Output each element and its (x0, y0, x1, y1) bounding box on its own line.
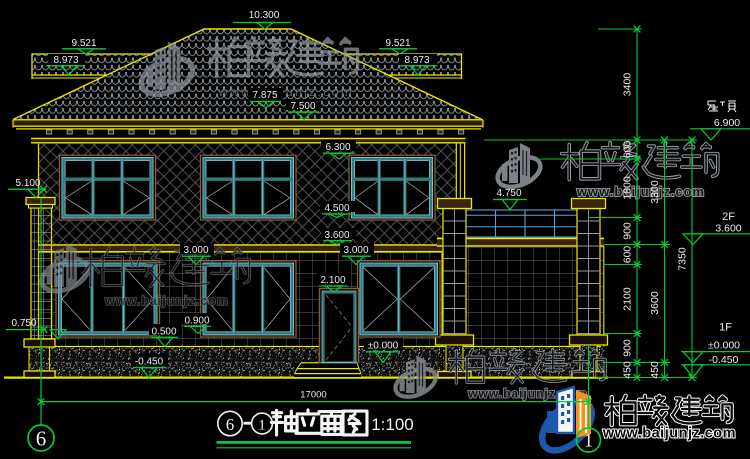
svg-text:450: 450 (649, 361, 661, 379)
svg-text:3600: 3600 (649, 291, 661, 315)
svg-text:0.500: 0.500 (151, 327, 176, 338)
svg-text:450: 450 (622, 361, 634, 379)
svg-text:3300: 3300 (649, 180, 661, 204)
svg-text:www.baijunjz.com: www.baijunjz.com (217, 84, 353, 99)
svg-text:1:100: 1:100 (371, 415, 414, 434)
svg-text:6.900: 6.900 (714, 117, 740, 129)
svg-text:8.973: 8.973 (53, 55, 78, 66)
svg-text:www.baijunjz.com: www.baijunjz.com (602, 426, 736, 442)
svg-text:1: 1 (584, 431, 594, 452)
svg-text:0.750: 0.750 (11, 318, 36, 329)
svg-text:5.100: 5.100 (15, 178, 40, 189)
svg-text:-0.450: -0.450 (135, 357, 164, 368)
svg-text:3.000: 3.000 (343, 245, 368, 256)
svg-text:600: 600 (622, 141, 634, 159)
svg-text:www.baijunjz.com: www.baijunjz.com (576, 184, 705, 199)
svg-text:9.521: 9.521 (71, 38, 96, 49)
svg-text:8.973: 8.973 (404, 55, 429, 66)
svg-text:1F: 1F (719, 322, 732, 334)
svg-text:10.300: 10.300 (249, 10, 280, 21)
svg-text:900: 900 (622, 339, 634, 357)
svg-text:3.600: 3.600 (324, 230, 349, 241)
svg-text:6: 6 (226, 415, 235, 434)
svg-text:7.500: 7.500 (290, 101, 315, 112)
svg-text:17000: 17000 (300, 390, 326, 401)
svg-text:6.300: 6.300 (325, 142, 350, 153)
svg-text:2100: 2100 (622, 287, 634, 311)
svg-text:600: 600 (622, 246, 634, 264)
svg-text:1800: 1800 (622, 176, 634, 200)
svg-text:2F: 2F (722, 211, 735, 223)
svg-text:7350: 7350 (677, 247, 689, 271)
svg-text:7.875: 7.875 (252, 90, 277, 101)
svg-text:3.600: 3.600 (715, 223, 741, 235)
svg-text:3.000: 3.000 (183, 245, 208, 256)
svg-text:0.900: 0.900 (184, 316, 209, 327)
svg-text:4.500: 4.500 (324, 203, 349, 214)
svg-text:4.750: 4.750 (496, 188, 521, 199)
svg-text:1: 1 (258, 418, 266, 434)
svg-text:6: 6 (36, 427, 47, 451)
svg-text:900: 900 (622, 222, 634, 240)
svg-text:±0.000: ±0.000 (708, 340, 740, 352)
svg-text:-0.450: -0.450 (709, 354, 739, 366)
svg-text:www.baijunjz.com: www.baijunjz.com (104, 294, 229, 308)
svg-text:9.521: 9.521 (385, 38, 410, 49)
svg-text:3400: 3400 (622, 73, 634, 97)
svg-text:±0.000: ±0.000 (368, 341, 399, 352)
svg-text:2.100: 2.100 (320, 275, 345, 286)
